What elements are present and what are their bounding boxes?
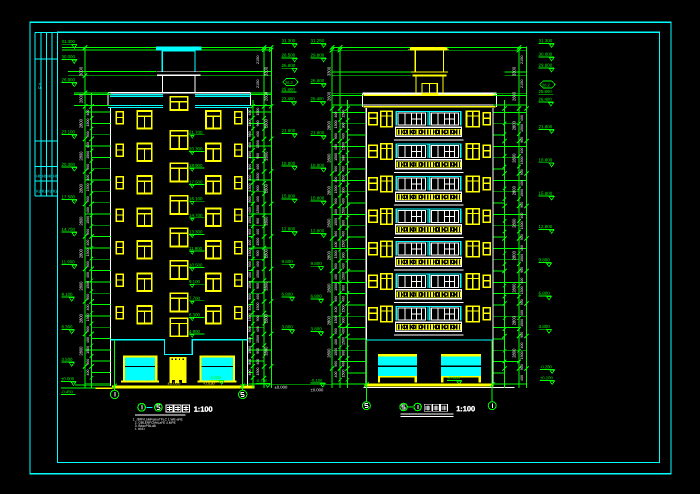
svg-text:29.800: 29.800 [310,53,324,58]
svg-text:1500: 1500 [520,124,524,132]
svg-text:400: 400 [334,177,338,183]
svg-text:900: 900 [256,315,260,321]
svg-text:900: 900 [334,133,338,139]
svg-text:1500: 1500 [248,183,252,191]
svg-text:2600: 2600 [327,91,332,101]
svg-text:900: 900 [248,164,252,170]
svg-text:400: 400 [256,131,260,137]
svg-text:2800: 2800 [327,153,332,163]
svg-text:21.800: 21.800 [538,124,552,129]
svg-text:2800: 2800 [511,153,516,163]
svg-text:3300: 3300 [511,66,516,76]
svg-text:2800: 2800 [264,281,269,291]
svg-text:18.800: 18.800 [310,163,324,168]
svg-text:900: 900 [248,229,252,235]
svg-text:29.800: 29.800 [538,63,552,68]
svg-text:1500: 1500 [342,272,346,280]
svg-text:1500: 1500 [86,313,90,321]
svg-text:400: 400 [334,209,338,215]
svg-text:2800: 2800 [327,283,332,293]
svg-text:1500: 1500 [256,238,260,246]
svg-text:1500: 1500 [342,305,346,313]
svg-text:400: 400 [248,207,252,213]
svg-text:400: 400 [86,337,90,343]
svg-text:2800: 2800 [79,248,84,258]
svg-text:6.300: 6.300 [189,312,201,317]
svg-text:3300: 3300 [264,66,269,76]
svg-text:1500: 1500 [520,254,524,262]
svg-text:400: 400 [334,372,338,378]
svg-text:900: 900 [248,294,252,300]
svg-text:14.700: 14.700 [61,227,75,232]
svg-text:2800: 2800 [264,151,269,161]
svg-text:30.000: 30.000 [538,52,552,57]
svg-text:2800: 2800 [511,120,516,130]
svg-text:±0.000: ±0.000 [310,387,323,392]
svg-text:400: 400 [86,175,90,181]
svg-text:900: 900 [342,252,346,258]
svg-text:9.100: 9.100 [189,279,201,284]
svg-text:1500: 1500 [248,248,252,256]
svg-text:900: 900 [342,285,346,291]
svg-text:400: 400 [256,164,260,170]
svg-text:2800: 2800 [79,313,84,323]
svg-text:1500: 1500 [520,351,524,359]
svg-text:400: 400 [256,326,260,332]
svg-text:23.400: 23.400 [281,96,295,101]
svg-text:900: 900 [342,122,346,128]
svg-text:400: 400 [86,272,90,278]
svg-text:25.800: 25.800 [538,89,552,94]
svg-text:Kz: Kz [42,189,47,194]
svg-text:900: 900 [342,350,346,356]
svg-text:2800: 2800 [79,118,84,128]
svg-text:20.300: 20.300 [61,162,75,167]
svg-text:±0.000: ±0.000 [61,376,75,381]
svg-text:-0.280: -0.280 [540,364,553,369]
svg-text:900: 900 [86,131,90,137]
svg-text:1500: 1500 [334,250,338,258]
svg-text:400: 400 [256,261,260,267]
svg-text:1500: 1500 [256,303,260,311]
svg-text:400: 400 [86,110,90,116]
svg-text:1500: 1500 [256,173,260,181]
svg-text:1500: 1500 [342,240,346,248]
svg-text:±0.100: ±0.100 [540,375,553,380]
svg-text:1500: 1500 [248,281,252,289]
svg-text:400: 400 [342,296,346,302]
svg-text:900: 900 [334,198,338,204]
svg-text:400: 400 [248,142,252,148]
svg-text:400: 400 [520,343,524,349]
svg-text:400: 400 [342,361,346,367]
svg-text:2600: 2600 [264,91,269,101]
svg-text:400: 400 [86,240,90,246]
svg-text:6.300: 6.300 [61,324,73,329]
svg-text:11.900: 11.900 [61,259,75,264]
svg-text:1500: 1500 [86,183,90,191]
svg-text:900: 900 [256,185,260,191]
svg-text:900: 900 [520,202,524,208]
svg-text:1:100: 1:100 [456,404,475,413]
svg-text:400: 400 [520,180,524,186]
svg-text:2800: 2800 [79,216,84,226]
svg-text:900: 900 [342,187,346,193]
svg-text:400: 400 [248,370,252,376]
svg-text:400: 400 [334,144,338,150]
svg-text:900: 900 [248,261,252,267]
svg-text:1500: 1500 [520,319,524,327]
svg-text:1500: 1500 [256,108,260,116]
svg-text:1500: 1500 [256,140,260,148]
svg-text:2800: 2800 [511,218,516,228]
svg-text:31.250: 31.250 [310,38,324,43]
svg-text:2150: 2150 [520,56,524,64]
svg-text:900: 900 [86,359,90,365]
svg-text:28.500: 28.500 [281,53,295,58]
svg-text:900: 900 [256,283,260,289]
svg-text:900: 900 [334,361,338,367]
svg-text:16.100: 16.100 [189,196,203,201]
svg-text:1500: 1500 [342,207,346,215]
svg-text:3.500: 3.500 [61,357,73,362]
svg-text:2800: 2800 [327,185,332,195]
svg-text:900: 900 [334,263,338,269]
svg-text:2150: 2150 [256,56,260,64]
svg-text:31.300: 31.300 [538,38,552,43]
svg-text:400: 400 [342,166,346,172]
svg-text:2150: 2150 [520,80,524,88]
svg-text:23.100: 23.100 [61,129,75,134]
svg-text:1500: 1500 [342,175,346,183]
svg-text:2800: 2800 [511,185,516,195]
svg-text:-0.100: -0.100 [310,378,323,383]
svg-text:400: 400 [334,339,338,345]
svg-text:1500: 1500 [334,218,338,226]
svg-text:±0.000: ±0.000 [274,385,287,390]
svg-text:Hb: Hb [53,174,59,179]
svg-text:900: 900 [342,155,346,161]
svg-text:900: 900 [520,169,524,175]
svg-text:3.800: 3.800 [281,324,293,329]
svg-text:4.900: 4.900 [189,329,201,334]
svg-text:900: 900 [342,317,346,323]
svg-text:400: 400 [520,310,524,316]
svg-text:1500: 1500 [248,313,252,321]
svg-text:1500: 1500 [256,270,260,278]
svg-text:-0.800: -0.800 [209,375,222,380]
svg-text:900: 900 [86,261,90,267]
svg-text:400: 400 [334,307,338,313]
svg-text:400: 400 [334,242,338,248]
svg-text:400: 400 [520,278,524,284]
svg-text:2800: 2800 [79,281,84,291]
svg-text:900: 900 [520,364,524,370]
svg-text:1500: 1500 [248,151,252,159]
svg-text:30.000: 30.000 [61,54,75,59]
svg-text:7.700: 7.700 [189,296,201,301]
svg-text:400: 400 [248,175,252,181]
svg-text:2800: 2800 [511,250,516,260]
svg-text:400: 400 [520,375,524,381]
svg-text:900: 900 [86,326,90,332]
svg-text:2800: 2800 [264,183,269,193]
svg-text:14.700: 14.700 [189,213,203,218]
svg-text:17.500: 17.500 [189,180,203,185]
svg-text:900: 900 [520,299,524,305]
svg-text:900: 900 [86,229,90,235]
svg-text:26.800: 26.800 [281,63,295,68]
svg-text:2800: 2800 [327,218,332,228]
svg-text:900: 900 [248,359,252,365]
svg-text:6.800: 6.800 [310,294,322,299]
svg-text:1500: 1500 [334,185,338,193]
svg-text:400: 400 [86,142,90,148]
svg-text:12.800: 12.800 [281,226,295,231]
svg-text:2800: 2800 [327,120,332,130]
svg-text:1500: 1500 [248,118,252,126]
svg-text:3.800: 3.800 [538,324,550,329]
svg-text:900: 900 [342,220,346,226]
svg-text:400: 400 [248,305,252,311]
svg-text:400: 400 [334,274,338,280]
svg-text:1500: 1500 [342,110,346,118]
svg-text:13.300: 13.300 [189,229,203,234]
svg-text:400: 400 [520,245,524,251]
svg-text:2800: 2800 [79,151,84,161]
svg-text:1500: 1500 [256,205,260,213]
svg-text:-0.100: -0.100 [255,378,268,383]
svg-text:400: 400 [342,133,346,139]
svg-text:400: 400 [256,294,260,300]
svg-text:1500: 1500 [86,118,90,126]
svg-text:2800: 2800 [264,346,269,356]
svg-text:1500: 1500 [248,346,252,354]
svg-text:1500: 1500 [334,315,338,323]
svg-text:2600: 2600 [511,91,516,101]
svg-text:2800: 2800 [264,313,269,323]
svg-text:900: 900 [334,231,338,237]
svg-text:26.800: 26.800 [310,78,324,83]
svg-text:2800: 2800 [264,216,269,226]
svg-text:400: 400 [342,328,346,334]
svg-text:12.800: 12.800 [310,228,324,233]
svg-text:9.800: 9.800 [310,261,322,266]
svg-text:2150: 2150 [256,80,260,88]
svg-text:1500: 1500 [520,286,524,294]
svg-text:15.800: 15.800 [310,196,324,201]
svg-text:15.800: 15.800 [281,194,295,199]
svg-text:4. BbEt: 4. BbEt [135,427,145,431]
svg-text:2800: 2800 [264,248,269,258]
svg-text:400: 400 [256,196,260,202]
svg-text:26.2: 26.2 [285,80,294,85]
svg-text:25.800: 25.800 [281,87,295,92]
svg-text:21.800: 21.800 [310,130,324,135]
svg-text:9.800: 9.800 [538,257,550,262]
svg-text:1500: 1500 [334,120,338,128]
svg-text:400: 400 [520,148,524,154]
svg-text:6.800: 6.800 [538,291,550,296]
svg-text:2600: 2600 [79,93,84,103]
svg-text:1500: 1500 [342,142,346,150]
svg-text:1500: 1500 [86,216,90,224]
svg-text:21.800: 21.800 [281,128,295,133]
svg-text:400: 400 [248,240,252,246]
svg-text:900: 900 [520,267,524,273]
svg-text:400: 400 [248,272,252,278]
svg-text:2800: 2800 [79,346,84,356]
svg-text:3000: 3000 [79,66,84,76]
svg-text:21.700: 21.700 [189,130,203,135]
svg-text:2800: 2800 [327,348,332,358]
svg-text:2800: 2800 [511,283,516,293]
svg-text:900: 900 [248,326,252,332]
svg-text:1:100: 1:100 [194,405,213,414]
svg-text:26.400: 26.400 [538,97,552,102]
svg-text:900: 900 [86,196,90,202]
svg-text:400: 400 [86,207,90,213]
svg-text:3300: 3300 [327,66,332,76]
svg-text:400: 400 [86,370,90,376]
svg-text:F.4: F.4 [38,82,43,89]
svg-text:31.300: 31.300 [61,39,75,44]
svg-text:400: 400 [86,305,90,311]
svg-text:1500: 1500 [334,283,338,291]
svg-text:Kz: Kz [36,189,41,194]
svg-text:900: 900 [520,332,524,338]
svg-text:1500: 1500 [248,216,252,224]
svg-text:1500: 1500 [86,346,90,354]
svg-text:31.300: 31.300 [281,38,295,43]
svg-text:2800: 2800 [327,250,332,260]
svg-text:3.800: 3.800 [310,326,322,331]
svg-text:12.800: 12.800 [538,224,552,229]
svg-text:2800: 2800 [511,348,516,358]
svg-text:-0.450: -0.450 [61,389,74,394]
svg-text:18.800: 18.800 [281,161,295,166]
svg-text:10.500: 10.500 [189,263,203,268]
svg-text:±0.000: ±0.000 [447,375,460,380]
svg-text:Kz: Kz [47,189,52,194]
svg-text:400: 400 [256,229,260,235]
svg-text:20.300: 20.300 [189,146,203,151]
svg-text:2800: 2800 [79,183,84,193]
svg-text:900: 900 [334,328,338,334]
svg-text:1500: 1500 [520,156,524,164]
svg-text:400: 400 [342,263,346,269]
svg-text:900: 900 [248,196,252,202]
svg-text:900: 900 [256,250,260,256]
svg-text:1500: 1500 [256,368,260,376]
svg-text:400: 400 [342,231,346,237]
svg-text:900: 900 [256,218,260,224]
svg-text:9.800: 9.800 [281,259,293,264]
svg-text:900: 900 [86,294,90,300]
svg-text:9.100: 9.100 [61,292,73,297]
svg-text:1500: 1500 [520,221,524,229]
svg-text:1500: 1500 [520,189,524,197]
svg-text:900: 900 [520,234,524,240]
svg-text:6.800: 6.800 [281,292,293,297]
svg-text:900: 900 [256,120,260,126]
svg-text:2800: 2800 [264,118,269,128]
svg-text:15.800: 15.800 [538,191,552,196]
svg-text:900: 900 [256,153,260,159]
svg-text:900: 900 [256,348,260,354]
svg-text:900: 900 [520,137,524,143]
svg-text:2800: 2800 [511,315,516,325]
svg-text:18.900: 18.900 [189,163,203,168]
svg-text:400: 400 [248,337,252,343]
svg-text:26.800: 26.800 [61,77,75,82]
svg-text:-0.030: -0.030 [203,381,216,386]
svg-text:1500: 1500 [86,151,90,159]
svg-text:±0.000: ±0.000 [167,381,180,386]
svg-text:400: 400 [520,213,524,219]
svg-text:400: 400 [334,112,338,118]
svg-text:26.2: 26.2 [542,83,551,88]
svg-text:26.400: 26.400 [310,96,324,101]
svg-text:17.500: 17.500 [61,194,75,199]
svg-text:900: 900 [86,164,90,170]
svg-text:900: 900 [334,296,338,302]
svg-text:900: 900 [334,166,338,172]
svg-text:900: 900 [248,131,252,137]
svg-text:400: 400 [248,110,252,116]
svg-text:1500: 1500 [86,281,90,289]
svg-text:400: 400 [520,115,524,121]
svg-text:1500: 1500 [334,153,338,161]
svg-text:18.800: 18.800 [538,158,552,163]
svg-text:1500: 1500 [256,335,260,343]
svg-text:11.900: 11.900 [189,246,203,251]
svg-text:Kz: Kz [53,189,58,194]
svg-text:400: 400 [256,359,260,365]
svg-text:400: 400 [342,198,346,204]
svg-text:1500: 1500 [342,370,346,378]
svg-text:1500: 1500 [342,337,346,345]
svg-text:1500: 1500 [334,348,338,356]
svg-text:2800: 2800 [327,315,332,325]
svg-text:1500: 1500 [86,248,90,256]
